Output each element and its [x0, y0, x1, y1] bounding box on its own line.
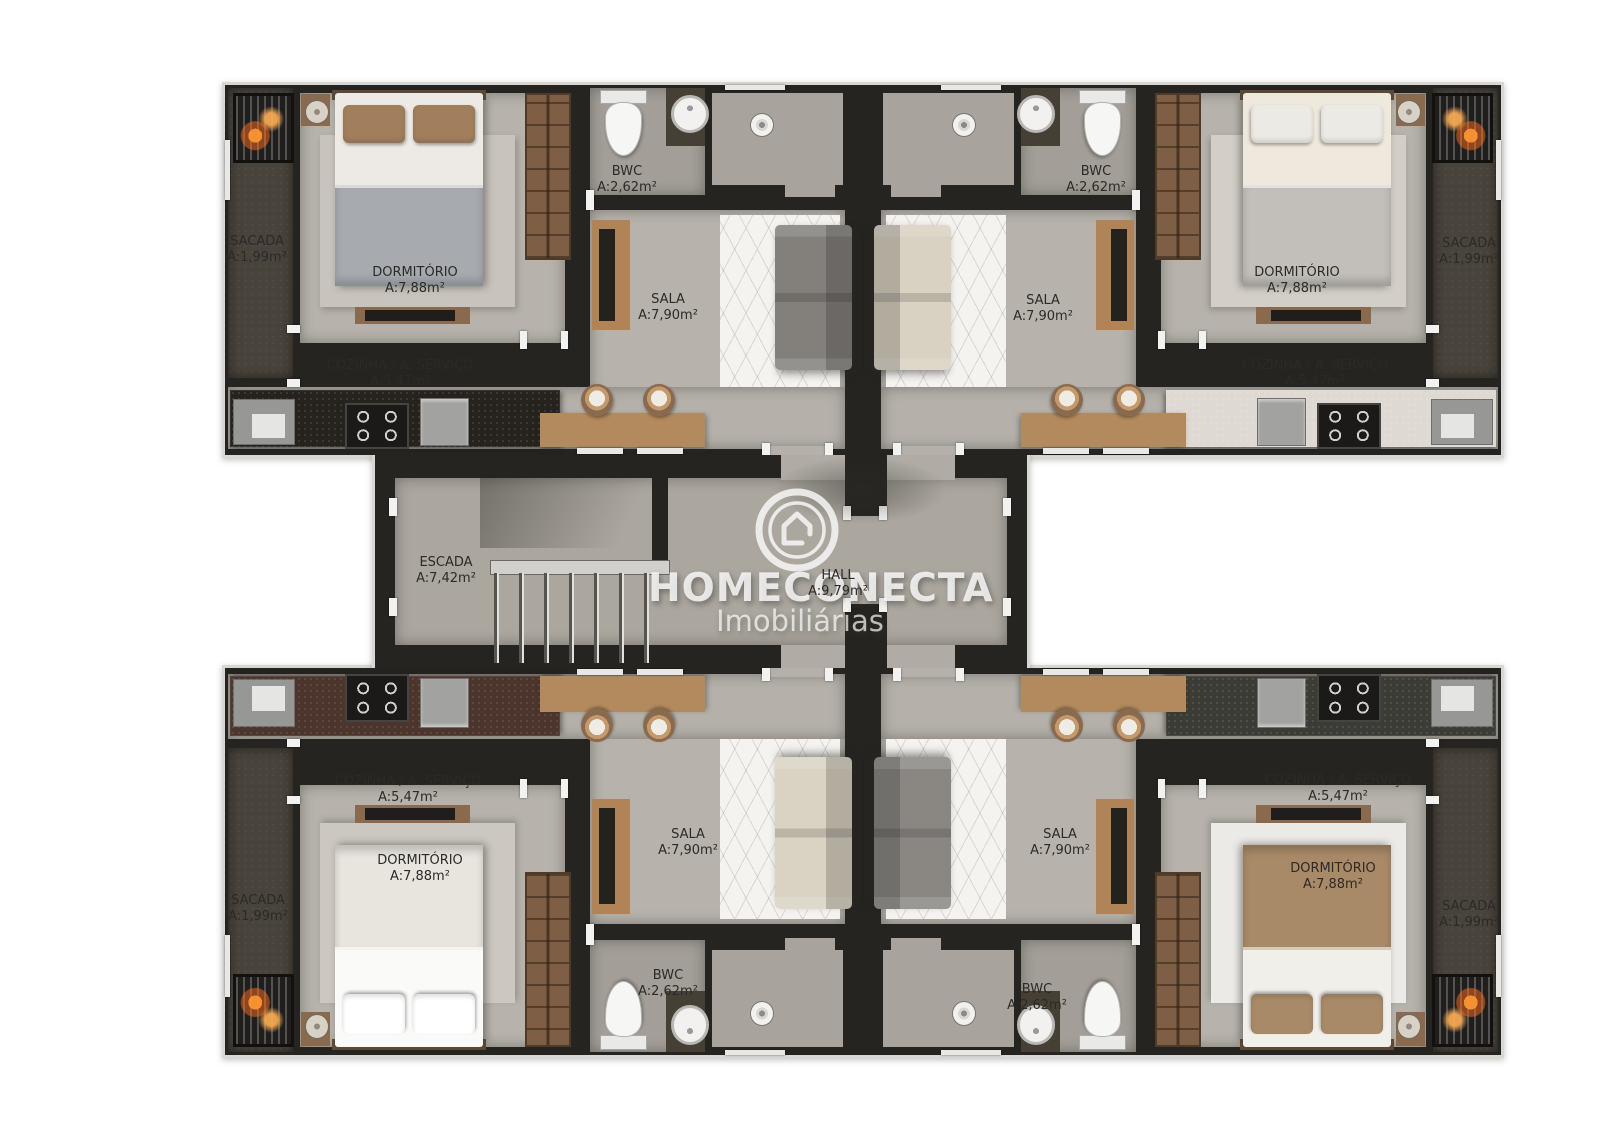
door-jamb — [1158, 331, 1165, 349]
label-tr-sala: SALAA:7,90m² — [1013, 293, 1073, 326]
living-room-tv — [1111, 229, 1127, 321]
label-tl-dormitorio: DORMITÓRIOA:7,88m² — [372, 265, 458, 298]
label-tl-bwc: BWCA:2,62m² — [597, 164, 657, 197]
sofa — [775, 757, 852, 909]
kitchen-sink — [1431, 399, 1493, 445]
toilet-tank — [1079, 1035, 1126, 1050]
dining-stool — [1051, 709, 1083, 742]
entry-vestibule-floor — [883, 950, 1014, 1046]
entry-door-opening — [901, 668, 956, 677]
door-jamb — [287, 325, 300, 333]
entry-vestibule-floor — [712, 93, 843, 185]
door-jamb — [1426, 796, 1439, 804]
entry-door-opening — [770, 446, 825, 455]
television — [1271, 310, 1361, 321]
door-jamb — [1426, 739, 1439, 747]
label-br-cozinha: COZINHA / A. SERVIÇOA:5,47m² — [1265, 773, 1412, 806]
window — [637, 448, 683, 454]
bed-pillow — [1321, 105, 1383, 143]
door-jamb — [389, 598, 397, 616]
television — [1271, 808, 1361, 819]
toilet-tank — [600, 1035, 647, 1050]
dining-island — [1021, 413, 1186, 447]
bathroom-sink — [1017, 95, 1055, 133]
door-jamb — [287, 739, 300, 747]
entry-door-opening — [901, 446, 956, 455]
television — [365, 310, 455, 321]
window — [1043, 448, 1089, 454]
vestibule-door-opening — [785, 938, 835, 951]
door-jamb — [762, 443, 770, 455]
label-hall: HALLA:9,79m² — [808, 568, 868, 601]
window — [1496, 935, 1501, 998]
kitchen-sink — [233, 679, 295, 727]
label-tr-cozinha: COZINHA / A. SERVIÇOA:5,47m² — [1242, 358, 1389, 391]
door-jamb — [561, 331, 568, 349]
label-tr-bwc: BWCA:2,62m² — [1066, 164, 1126, 197]
label-br-bwc: BWCA:2,62m² — [1007, 982, 1067, 1015]
window — [225, 140, 230, 200]
bed-pillow — [343, 105, 405, 143]
table-lamp — [305, 100, 329, 124]
dining-island — [540, 676, 705, 712]
pendant-light — [952, 113, 976, 137]
label-bl-cozinha: COZINHA / A. SERVIÇOA:5,47m² — [335, 774, 482, 807]
window — [941, 85, 1001, 90]
window — [577, 669, 623, 675]
ac-condenser-unit — [233, 974, 294, 1047]
watermark-tagline: Imobiliárias — [698, 604, 902, 638]
dining-stool — [581, 384, 613, 416]
pendant-light — [952, 1001, 976, 1026]
window — [1043, 669, 1089, 675]
pendant-light — [750, 113, 774, 137]
stair-upper-shadow — [480, 478, 720, 548]
dining-stool — [581, 709, 613, 742]
window — [225, 935, 230, 998]
ac-condenser-unit — [233, 93, 294, 163]
stove-cooktop — [1317, 674, 1381, 722]
refrigerator — [1257, 678, 1306, 728]
door-jamb — [586, 924, 594, 945]
ac-condenser-unit — [1432, 974, 1493, 1047]
door-jamb — [893, 443, 901, 455]
door-jamb — [956, 668, 964, 681]
bed-pillow — [1251, 994, 1313, 1034]
door-jamb — [287, 379, 300, 387]
pendant-light — [750, 1001, 774, 1026]
window — [637, 669, 683, 675]
entry-vestibule-floor — [883, 93, 1014, 185]
wardrobe — [525, 93, 571, 260]
window — [725, 85, 785, 90]
door-jamb — [520, 779, 527, 798]
door-jamb — [762, 668, 770, 681]
stove-cooktop — [345, 403, 409, 449]
door-jamb — [1003, 598, 1011, 616]
door-jamb — [586, 190, 594, 210]
vestibule-door-opening — [891, 185, 941, 197]
dining-island — [540, 413, 705, 447]
door-jamb — [893, 668, 901, 681]
label-bl-sala: SALAA:7,90m² — [658, 827, 718, 860]
label-br-sacada: SACADAA:1,99m² — [1439, 899, 1499, 932]
stove-cooktop — [345, 674, 409, 722]
unit-bottom-left — [225, 668, 855, 1055]
label-tr-sacada: SACADAA:1,99m² — [1439, 236, 1499, 269]
stove-cooktop — [1317, 403, 1381, 449]
door-jamb — [1199, 779, 1206, 798]
dining-stool — [1113, 384, 1145, 416]
wardrobe — [525, 872, 571, 1046]
label-br-sala: SALAA:7,90m² — [1030, 827, 1090, 860]
window — [577, 448, 623, 454]
sofa — [775, 225, 852, 370]
living-room-tv — [599, 229, 615, 321]
door-jamb — [825, 443, 833, 455]
living-room-tv — [1111, 808, 1127, 904]
label-tl-sala: SALAA:7,90m² — [638, 292, 698, 325]
label-escada: ESCADAA:7,42m² — [416, 555, 476, 588]
homeconecta-logo-icon — [753, 486, 841, 574]
vestibule-door-opening — [785, 185, 835, 197]
entry-vestibule-floor — [712, 950, 843, 1046]
floor-plan-canvas: HOMECONECTA Imobiliárias ESCADAA:7,42m² … — [0, 0, 1599, 1143]
label-bl-dormitorio: DORMITÓRIOA:7,88m² — [377, 853, 463, 886]
refrigerator — [420, 678, 469, 728]
wardrobe — [1155, 93, 1201, 260]
door-jamb — [1426, 379, 1439, 387]
label-tr-dormitorio: DORMITÓRIOA:7,88m² — [1254, 265, 1340, 298]
door-jamb — [520, 331, 527, 349]
bathroom-sink — [671, 1005, 709, 1044]
door-jamb — [287, 796, 300, 804]
wardrobe — [1155, 872, 1201, 1046]
door-jamb — [825, 668, 833, 681]
table-lamp — [1397, 100, 1421, 124]
dining-stool — [643, 384, 675, 416]
label-bl-bwc: BWCA:2,62m² — [638, 968, 698, 1001]
unit-top-right — [871, 85, 1501, 455]
door-jamb — [956, 443, 964, 455]
vestibule-door-opening — [891, 938, 941, 951]
kitchen-sink — [233, 399, 295, 445]
window — [1103, 669, 1149, 675]
bed-pillow — [1251, 105, 1313, 143]
label-bl-sacada: SACADAA:1,99m² — [228, 893, 288, 926]
door-jamb — [1158, 779, 1165, 798]
door-jamb — [1426, 325, 1439, 333]
sofa — [874, 225, 951, 370]
window — [1103, 448, 1149, 454]
door-jamb — [1132, 190, 1140, 210]
door-jamb — [389, 498, 397, 516]
label-br-dormitorio: DORMITÓRIOA:7,88m² — [1290, 861, 1376, 894]
dining-stool — [1113, 709, 1145, 742]
bathroom-sink — [671, 95, 709, 133]
label-tl-cozinha: COZINHA / A. SERVIÇOA:5,47m² — [327, 358, 474, 391]
ac-condenser-unit — [1432, 93, 1493, 163]
label-tl-sacada: SACADAA:1,99m² — [227, 234, 287, 267]
bed-pillow — [413, 105, 475, 143]
window — [725, 1050, 785, 1055]
kitchen-sink — [1431, 679, 1493, 727]
unit-top-left — [225, 85, 855, 455]
bed-pillow — [413, 994, 475, 1034]
bed-pillow — [1321, 994, 1383, 1034]
door-jamb — [1003, 498, 1011, 516]
window — [941, 1050, 1001, 1055]
refrigerator — [420, 398, 469, 446]
living-room-tv — [599, 808, 615, 904]
dining-stool — [1051, 384, 1083, 416]
dining-stool — [643, 709, 675, 742]
door-jamb — [1199, 331, 1206, 349]
door-jamb — [561, 779, 568, 798]
door-jamb — [1132, 924, 1140, 945]
dining-island — [1021, 676, 1186, 712]
bed-pillow — [343, 994, 405, 1034]
television — [365, 808, 455, 819]
entry-door-opening — [770, 668, 825, 677]
window — [1496, 140, 1501, 200]
stair-treads — [494, 573, 666, 663]
unit-bottom-right — [871, 668, 1501, 1055]
sofa — [874, 757, 951, 909]
refrigerator — [1257, 398, 1306, 446]
